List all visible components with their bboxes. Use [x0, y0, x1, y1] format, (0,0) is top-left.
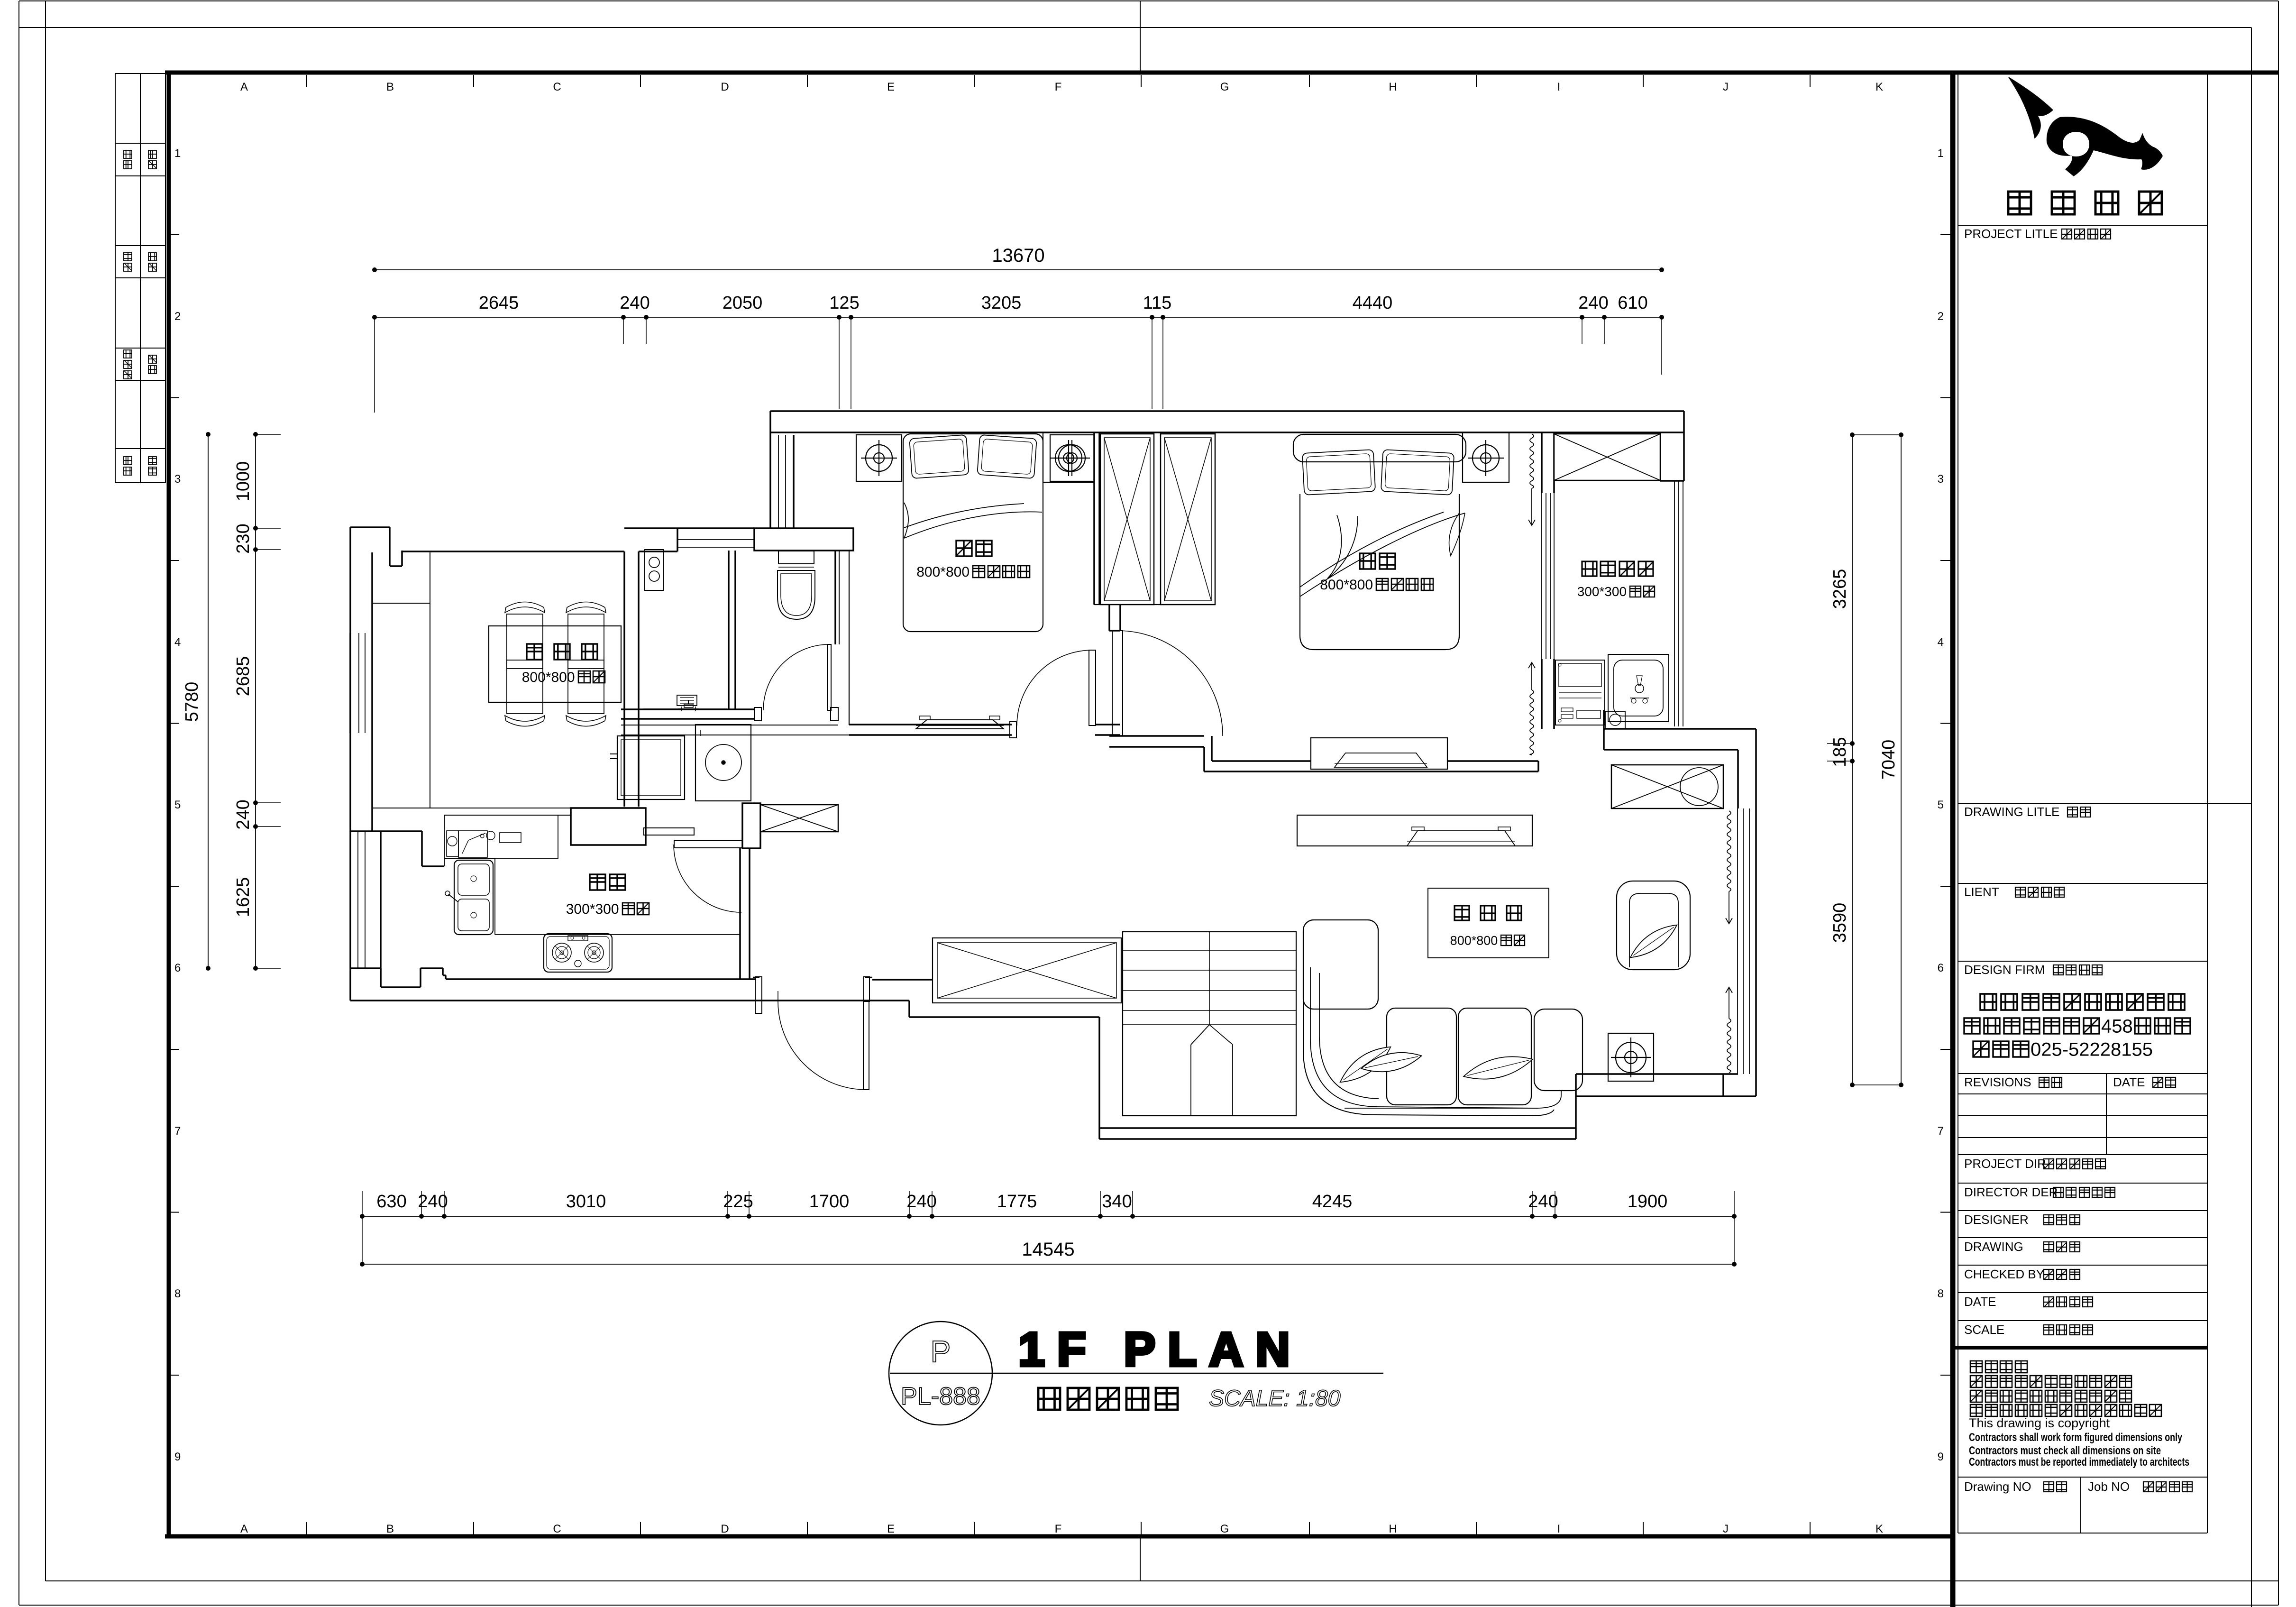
svg-text:3205: 3205 — [981, 293, 1022, 313]
svg-text:A: A — [240, 1523, 248, 1535]
svg-text:I: I — [1557, 1523, 1561, 1535]
svg-text:Contractors must check all dim: Contractors must check all dimensions on… — [1969, 1444, 2161, 1457]
svg-text:J: J — [1723, 1523, 1729, 1535]
svg-text:5780: 5780 — [182, 682, 202, 722]
svg-text:3265: 3265 — [1830, 569, 1850, 609]
svg-text:SCALE: SCALE — [1964, 1322, 2004, 1337]
svg-text:J: J — [1723, 81, 1729, 93]
svg-text:125: 125 — [829, 293, 859, 313]
svg-text:2645: 2645 — [479, 293, 519, 313]
svg-text:1000: 1000 — [233, 461, 253, 502]
svg-text:Contractors shall work form fi: Contractors shall work form figured dime… — [1969, 1431, 2182, 1444]
svg-text:E: E — [887, 81, 895, 93]
svg-text:1900: 1900 — [1628, 1192, 1668, 1212]
svg-text:9: 9 — [1938, 1451, 1944, 1463]
svg-text:SCALE: 1:80: SCALE: 1:80 — [1209, 1386, 1341, 1411]
svg-text:REVISIONS: REVISIONS — [1964, 1075, 2031, 1089]
svg-text:610: 610 — [1618, 293, 1647, 313]
svg-text:1700: 1700 — [809, 1192, 850, 1212]
svg-text:PROJECT LITLE: PROJECT LITLE — [1964, 227, 2058, 241]
svg-text:185: 185 — [1830, 737, 1850, 767]
svg-text:800*800: 800*800 — [916, 564, 970, 580]
svg-text:7040: 7040 — [1879, 740, 1899, 780]
svg-text:240: 240 — [418, 1192, 448, 1212]
svg-text:CHECKED BY: CHECKED BY — [1964, 1267, 2044, 1281]
svg-text:8: 8 — [1938, 1287, 1944, 1300]
svg-text:800*800: 800*800 — [1320, 577, 1373, 593]
svg-text:Job NO: Job NO — [2088, 1479, 2130, 1494]
svg-text:300*300: 300*300 — [1577, 584, 1627, 599]
svg-text:025-52228155: 025-52228155 — [2031, 1039, 2153, 1060]
svg-text:LIENT: LIENT — [1964, 885, 1999, 899]
svg-text:5: 5 — [174, 799, 181, 811]
svg-text:800*800: 800*800 — [522, 670, 575, 685]
svg-text:D: D — [721, 1523, 729, 1535]
svg-text:DATE: DATE — [2113, 1075, 2145, 1089]
svg-text:DESIGN FIRM: DESIGN FIRM — [1964, 963, 2045, 977]
svg-text:240: 240 — [620, 293, 649, 313]
svg-text:13670: 13670 — [992, 245, 1044, 266]
svg-text:PL-888: PL-888 — [901, 1383, 980, 1410]
svg-text:240: 240 — [1528, 1192, 1558, 1212]
svg-text:14545: 14545 — [1022, 1239, 1074, 1260]
svg-text:1F PLAN: 1F PLAN — [1018, 1323, 1302, 1376]
svg-text:F: F — [1055, 1523, 1062, 1535]
svg-text:1: 1 — [1938, 147, 1944, 160]
svg-text:G: G — [1220, 1523, 1229, 1535]
svg-text:DATE: DATE — [1964, 1295, 1996, 1309]
svg-text:F: F — [1055, 81, 1062, 93]
svg-text:P: P — [931, 1334, 951, 1368]
svg-text:3010: 3010 — [566, 1192, 606, 1212]
svg-text:A: A — [240, 81, 248, 93]
svg-text:2: 2 — [174, 310, 181, 323]
svg-text:3590: 3590 — [1830, 903, 1850, 943]
svg-text:630: 630 — [376, 1192, 406, 1212]
svg-text:I: I — [1557, 81, 1561, 93]
svg-text:DESIGNER: DESIGNER — [1964, 1212, 2029, 1227]
svg-text:Drawing NO: Drawing NO — [1964, 1479, 2031, 1494]
svg-text:1625: 1625 — [233, 877, 253, 918]
svg-text:7: 7 — [1938, 1125, 1944, 1138]
svg-text:5: 5 — [1938, 799, 1944, 811]
svg-text:H: H — [1389, 1523, 1397, 1535]
svg-text:240: 240 — [233, 799, 253, 829]
svg-text:E: E — [887, 1523, 895, 1535]
svg-text:2685: 2685 — [233, 656, 253, 697]
svg-text:4245: 4245 — [1312, 1192, 1353, 1212]
svg-text:458: 458 — [2101, 1016, 2133, 1037]
svg-text:115: 115 — [1143, 293, 1172, 313]
svg-text:800*800: 800*800 — [1450, 934, 1498, 948]
svg-text:2050: 2050 — [723, 293, 763, 313]
svg-text:DRAWING: DRAWING — [1964, 1240, 2023, 1254]
svg-text:6: 6 — [174, 962, 181, 974]
svg-text:G: G — [1220, 81, 1229, 93]
svg-text:1775: 1775 — [997, 1192, 1037, 1212]
svg-text:H: H — [1389, 81, 1397, 93]
svg-text:K: K — [1875, 81, 1883, 93]
svg-text:3: 3 — [174, 473, 181, 486]
svg-text:300*300: 300*300 — [566, 901, 619, 917]
svg-text:Contractors must be reported i: Contractors must be reported immediately… — [1969, 1456, 2189, 1469]
svg-text:C: C — [553, 1523, 561, 1535]
svg-text:4: 4 — [1938, 636, 1944, 649]
svg-text:DIRECTOR DER: DIRECTOR DER — [1964, 1185, 2058, 1199]
svg-text:1: 1 — [174, 147, 181, 160]
svg-text:230: 230 — [233, 523, 253, 553]
svg-text:9: 9 — [174, 1451, 181, 1463]
svg-text:4: 4 — [174, 636, 181, 649]
svg-text:240: 240 — [1578, 293, 1608, 313]
svg-text:PROJECT DIR: PROJECT DIR — [1964, 1157, 2046, 1171]
svg-text:7: 7 — [174, 1125, 181, 1138]
svg-text:8: 8 — [174, 1287, 181, 1300]
svg-text:3: 3 — [1938, 473, 1944, 486]
svg-text:6: 6 — [1938, 962, 1944, 974]
svg-text:This drawing is copyright: This drawing is copyright — [1969, 1416, 2110, 1430]
svg-text:B: B — [386, 81, 394, 93]
svg-text:B: B — [386, 1523, 394, 1535]
svg-text:4440: 4440 — [1353, 293, 1393, 313]
svg-text:C: C — [553, 81, 561, 93]
svg-text:D: D — [721, 81, 729, 93]
svg-text:DRAWING LITLE: DRAWING LITLE — [1964, 805, 2059, 819]
svg-text:340: 340 — [1102, 1192, 1132, 1212]
svg-text:2: 2 — [1938, 310, 1944, 323]
svg-text:K: K — [1875, 1523, 1883, 1535]
